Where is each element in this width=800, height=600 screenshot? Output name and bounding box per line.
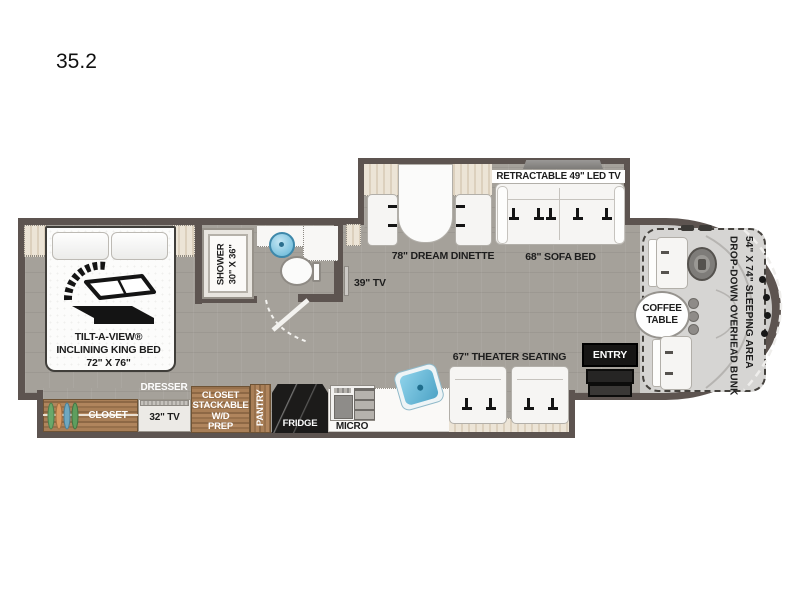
seatbelt-icon [537,208,540,218]
coffee-table-label-2: TABLE [646,315,678,327]
hanger-icons [46,401,82,431]
theater-backrest-line [455,379,501,380]
theater-label: 67" THEATER SEATING [437,351,582,364]
console-cupholder [688,298,699,309]
pantry-label: PANTRY [255,383,266,432]
retractable-tv-label: RETRACTABLE 49" LED TV [492,170,625,183]
bunk-label: DROP-DOWN OVERHEAD BUNK 54" X 74" SLEEPI… [725,236,756,392]
windshield-dot [761,330,768,337]
seatbelt-icon [465,398,468,408]
seatbelt-icon [527,398,530,408]
micro-label: MICRO [328,421,376,433]
dinette-table [398,164,453,243]
seatbelt-icon [512,208,515,218]
seatbelt-icon [489,398,492,408]
retractable-tv-icon [523,160,603,169]
windshield-dot [763,294,770,301]
tv32-icon [140,400,189,406]
windshield-dot [764,312,771,319]
dinette-bench-left [367,194,398,246]
windshield-dot [759,276,766,283]
tv32-label: 32" TV [140,412,189,424]
seat-stitch [665,351,673,354]
theater-seat-right [511,366,569,424]
seatbelt-icon [388,205,397,208]
sofa-center-divider [559,188,560,240]
closet-label: CLOSET [80,410,136,422]
seat-stitch [661,251,669,254]
entry-step-2 [588,384,632,397]
dinette-bench-right [455,194,492,246]
console-cupholder [688,324,699,335]
seatbelt-icon [605,208,608,218]
steering-hub [698,259,706,270]
steering-wheel-icon [687,247,717,281]
range-burner-panel [334,395,353,419]
seatbelt-icon [456,205,465,208]
bed-label: TILT-A-VIEW® INCLINING KING BED 72" X 76… [45,331,172,370]
bath-wall-bottom [298,294,343,302]
toilet-icon [280,256,314,286]
bath-sink-drain [279,242,284,247]
seatbelt-icon [549,208,552,218]
plan-number: 35.2 [56,50,97,74]
cabinet-trim [346,224,361,246]
entry-door: ENTRY [582,343,638,367]
micro-grid [354,388,375,420]
sofa-armrest-right [614,186,625,244]
range-vent [334,388,351,393]
seatbelt-icon [456,224,465,227]
theater-backrest-line [517,379,563,380]
dinette-label: 78" DREAM DINETTE [368,250,518,263]
floorplan: 35.2 TILT-A-VIEW® INCLINING KING BED 72"… [0,0,800,600]
toilet-tank [312,262,321,282]
driver-seat [648,237,688,289]
wd-prep-label: STACKABLE W/D PREP [191,401,250,433]
coffee-table: COFFEE TABLE [634,291,690,339]
coffee-table-label-1: COFFEE [642,303,681,315]
sofa-armrest-left [497,186,508,244]
fridge-label: FRIDGE [272,418,328,429]
passenger-seat [652,336,692,390]
seat-stitch [661,271,669,274]
tv39-label: 39" TV [354,277,386,290]
tilt-bed-icon [56,246,166,330]
seatbelt-icon [551,398,554,408]
bath-sink-icon [269,232,295,258]
tv39-icon [344,266,349,296]
shower-label: SHOWER 30" X 36" [216,232,241,296]
theater-seat-left [449,366,507,424]
dash-vent [681,225,694,231]
entry-step-1 [586,369,634,384]
seatbelt-icon [576,208,579,218]
sofa-label: 68" SOFA BED [498,251,623,264]
bath-wall-left [195,222,202,304]
dresser-label: DRESSER [128,382,200,394]
entry-label: ENTRY [593,349,627,362]
micro-range-icon [330,385,375,421]
bath-counter-side [303,226,338,261]
seatbelt-icon [388,224,397,227]
dash-vent [699,225,712,231]
seat-cushion [656,237,688,289]
seat-cushion [660,336,692,390]
nightstand-left [24,225,47,257]
seat-stitch [665,372,673,375]
